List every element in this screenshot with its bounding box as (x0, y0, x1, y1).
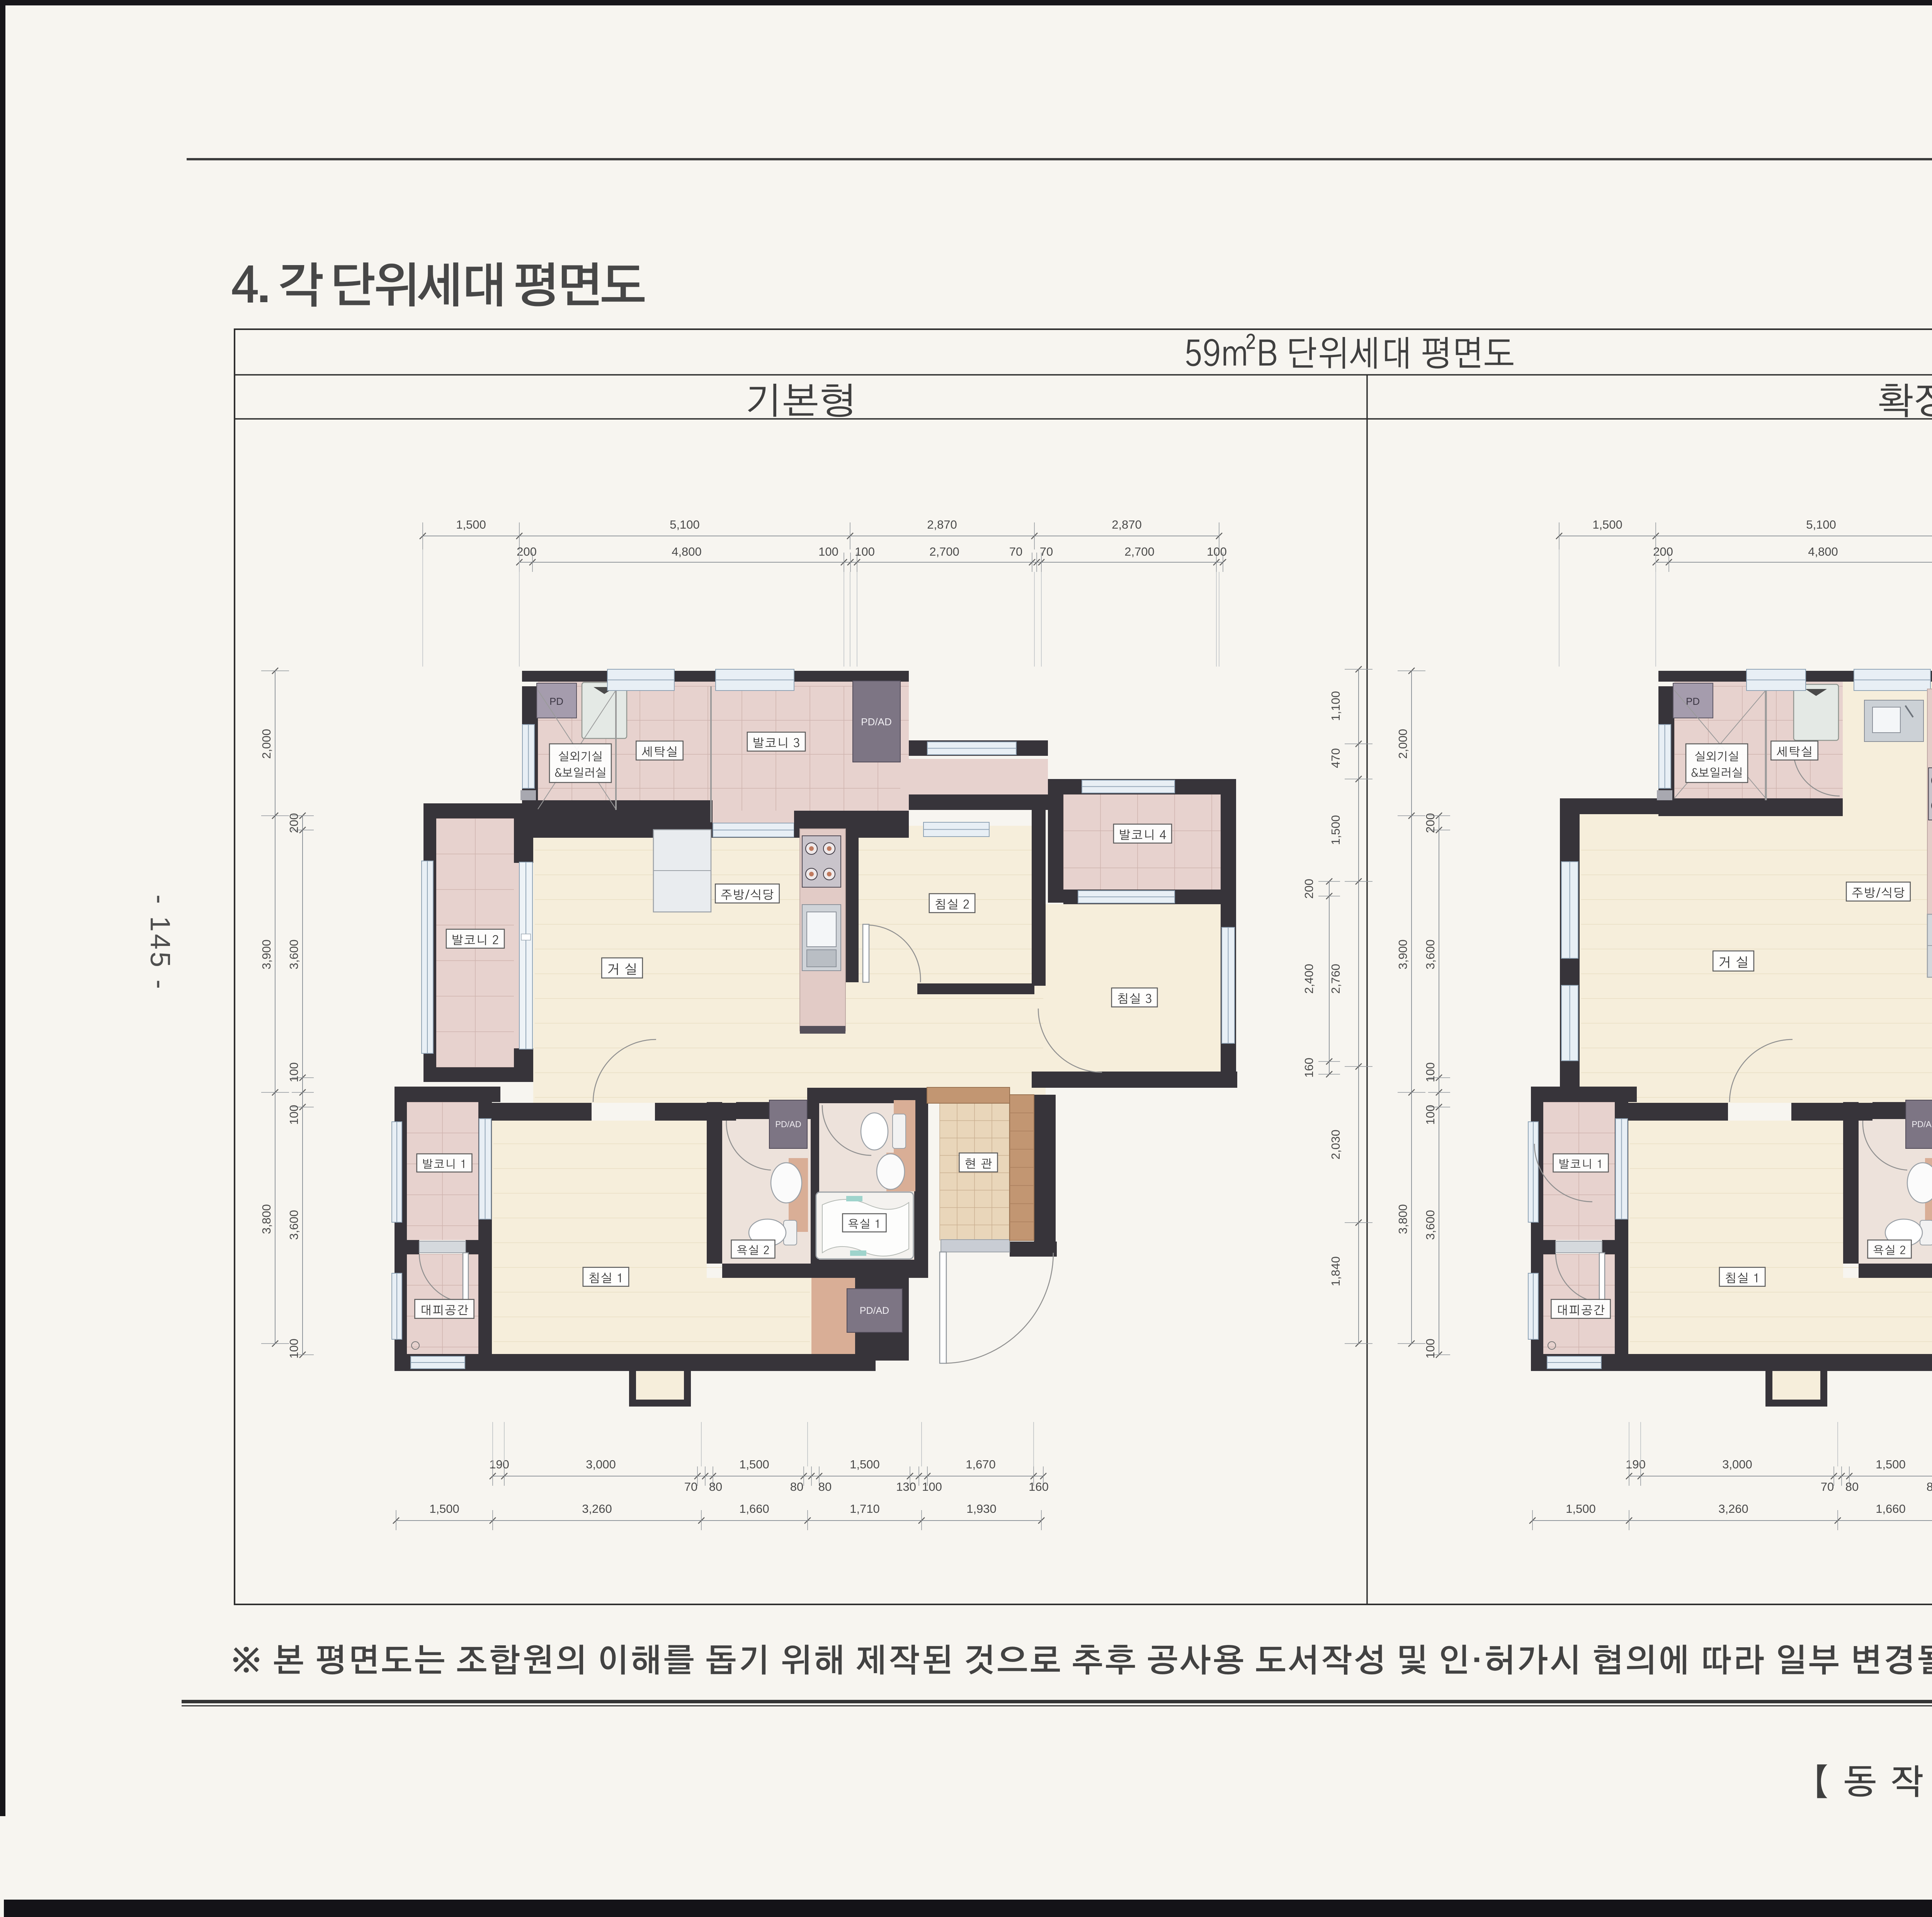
svg-text:2,870: 2,870 (927, 518, 957, 531)
svg-text:200: 200 (1653, 545, 1673, 558)
svg-text:1,500: 1,500 (456, 518, 486, 531)
svg-text:200: 200 (287, 813, 301, 833)
svg-text:80: 80 (709, 1480, 722, 1493)
svg-text:70: 70 (684, 1480, 697, 1493)
svg-text:80: 80 (818, 1480, 832, 1493)
svg-text:3,800: 3,800 (1396, 1204, 1410, 1234)
svg-text:3,800: 3,800 (260, 1204, 273, 1234)
svg-text:100: 100 (1423, 1105, 1437, 1125)
svg-text:1,500: 1,500 (739, 1458, 769, 1471)
svg-text:PD/AD: PD/AD (860, 1305, 889, 1316)
svg-text:2,760: 2,760 (1329, 964, 1342, 994)
svg-text:PD: PD (1686, 696, 1700, 707)
svg-text:PD/AD: PD/AD (775, 1119, 801, 1129)
svg-text:100: 100 (287, 1062, 301, 1082)
svg-text:130: 130 (896, 1480, 916, 1493)
svg-text:160: 160 (1029, 1480, 1049, 1493)
svg-text:70: 70 (1009, 545, 1022, 558)
svg-text:3,000: 3,000 (586, 1458, 616, 1471)
svg-text:100: 100 (1423, 1339, 1437, 1359)
svg-text:2,700: 2,700 (1124, 545, 1155, 558)
svg-text:1,660: 1,660 (739, 1502, 769, 1516)
svg-text:3,260: 3,260 (1718, 1502, 1748, 1516)
svg-text:200: 200 (517, 545, 537, 558)
svg-text:3,600: 3,600 (287, 1210, 301, 1240)
svg-text:PD/AD: PD/AD (1912, 1119, 1932, 1129)
svg-text:3,900: 3,900 (1396, 939, 1410, 970)
svg-text:1,710: 1,710 (850, 1502, 880, 1516)
svg-text:1,500: 1,500 (1329, 815, 1342, 845)
svg-text:80: 80 (790, 1480, 803, 1493)
svg-text:3,000: 3,000 (1722, 1458, 1752, 1471)
svg-text:100: 100 (287, 1105, 301, 1125)
svg-text:100: 100 (287, 1339, 301, 1359)
svg-text:1,840: 1,840 (1329, 1256, 1342, 1286)
svg-text:70: 70 (1821, 1480, 1834, 1493)
svg-text:1,500: 1,500 (1592, 518, 1622, 531)
svg-text:190: 190 (489, 1458, 509, 1471)
svg-text:70: 70 (1040, 545, 1053, 558)
svg-text:2,030: 2,030 (1329, 1129, 1342, 1160)
svg-text:1,660: 1,660 (1876, 1502, 1906, 1516)
svg-text:3,600: 3,600 (1423, 939, 1437, 970)
svg-text:100: 100 (1423, 1062, 1437, 1082)
svg-text:PD/AD: PD/AD (861, 716, 891, 728)
svg-text:1,100: 1,100 (1329, 691, 1342, 721)
svg-text:1,500: 1,500 (850, 1458, 880, 1471)
svg-text:100: 100 (818, 545, 838, 558)
svg-text:4,800: 4,800 (672, 545, 702, 558)
svg-text:80: 80 (1845, 1480, 1859, 1493)
svg-text:200: 200 (1302, 879, 1316, 899)
svg-text:2,000: 2,000 (1396, 729, 1410, 759)
svg-text:3,260: 3,260 (582, 1502, 612, 1516)
svg-text:80: 80 (1927, 1480, 1932, 1493)
svg-text:5,100: 5,100 (1806, 518, 1836, 531)
svg-text:190: 190 (1626, 1458, 1646, 1471)
svg-text:- 145 -: - 145 - (145, 895, 175, 991)
svg-text:5,100: 5,100 (670, 518, 700, 531)
svg-text:100: 100 (922, 1480, 942, 1493)
svg-text:2,870: 2,870 (1112, 518, 1142, 531)
svg-text:3,900: 3,900 (260, 939, 273, 970)
svg-text:1,670: 1,670 (966, 1458, 996, 1471)
svg-text:100: 100 (855, 545, 875, 558)
svg-text:4,800: 4,800 (1808, 545, 1838, 558)
svg-text:1,930: 1,930 (966, 1502, 997, 1516)
svg-text:100: 100 (1207, 545, 1227, 558)
svg-text:2,400: 2,400 (1302, 964, 1316, 994)
svg-text:1,500: 1,500 (1876, 1458, 1906, 1471)
svg-text:160: 160 (1302, 1058, 1316, 1078)
svg-text:200: 200 (1423, 813, 1437, 833)
svg-text:3,600: 3,600 (1423, 1210, 1437, 1240)
svg-text:470: 470 (1329, 748, 1342, 768)
svg-text:1,500: 1,500 (1566, 1502, 1596, 1516)
svg-text:2,700: 2,700 (929, 545, 959, 558)
svg-text:1,500: 1,500 (429, 1502, 459, 1516)
svg-text:PD: PD (549, 696, 563, 707)
svg-text:3,600: 3,600 (287, 939, 301, 970)
svg-text:2,000: 2,000 (260, 729, 273, 759)
